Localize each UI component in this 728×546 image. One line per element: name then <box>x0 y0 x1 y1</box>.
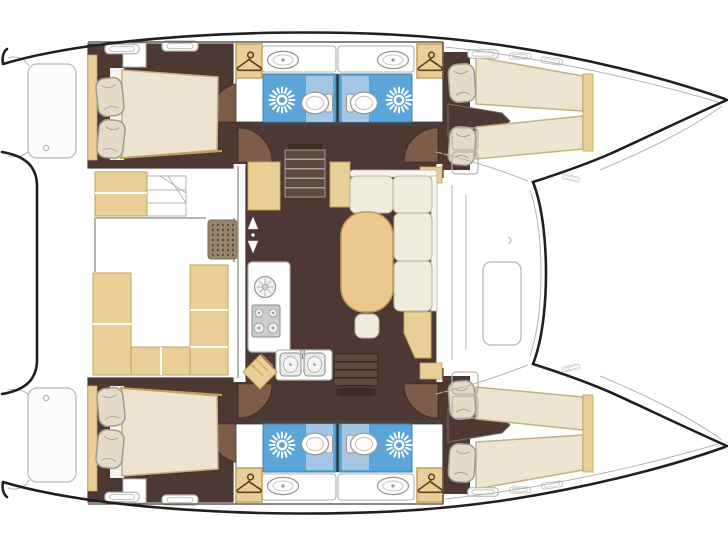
wardrobe <box>236 468 262 502</box>
settee-cushion <box>394 261 432 311</box>
salon-table <box>341 212 393 312</box>
settee-cushion <box>350 176 393 213</box>
double-bed-mattress <box>122 388 218 476</box>
cockpit-bench-right <box>190 265 228 375</box>
stern-platform-starboard <box>8 388 76 489</box>
bathrooms-port <box>236 42 443 122</box>
companionway-stairs-port <box>285 144 325 197</box>
foredeck-locker <box>483 262 521 345</box>
bed-frame-strip <box>88 386 97 491</box>
wardrobe <box>417 44 443 78</box>
wardrobe <box>236 44 262 78</box>
salon-pouf <box>355 314 379 338</box>
galley-cabinet-fwd <box>330 162 350 207</box>
bed-foot-shelf <box>583 395 593 472</box>
companionway-stairs-starboard <box>334 354 378 396</box>
faucet <box>300 350 305 355</box>
galley-round-dial <box>255 277 276 298</box>
stair-handle <box>336 388 376 396</box>
side-locker <box>420 363 442 379</box>
foredeck-cleat <box>508 237 511 244</box>
settee-cushion <box>393 176 432 213</box>
stern-platform-port <box>8 57 76 158</box>
inner-hull-and-bridgedeck-edge <box>533 100 727 446</box>
cockpit-stairs-base <box>147 176 186 216</box>
double-bed-mattress <box>122 70 218 158</box>
bathrooms-starboard <box>236 424 443 504</box>
transom-inner-edge <box>2 152 37 394</box>
settee-cushion <box>394 213 432 261</box>
galley-cabinet-aft <box>248 162 280 210</box>
stove-burners-icon <box>252 305 280 337</box>
bed-frame-strip <box>88 55 97 160</box>
catamaran-floor-plan <box>0 0 728 546</box>
bed-foot-shelf <box>583 74 593 151</box>
catamaran-floor-plan-page <box>0 0 728 546</box>
aft-cockpit <box>93 166 246 378</box>
wardrobe <box>417 468 443 502</box>
